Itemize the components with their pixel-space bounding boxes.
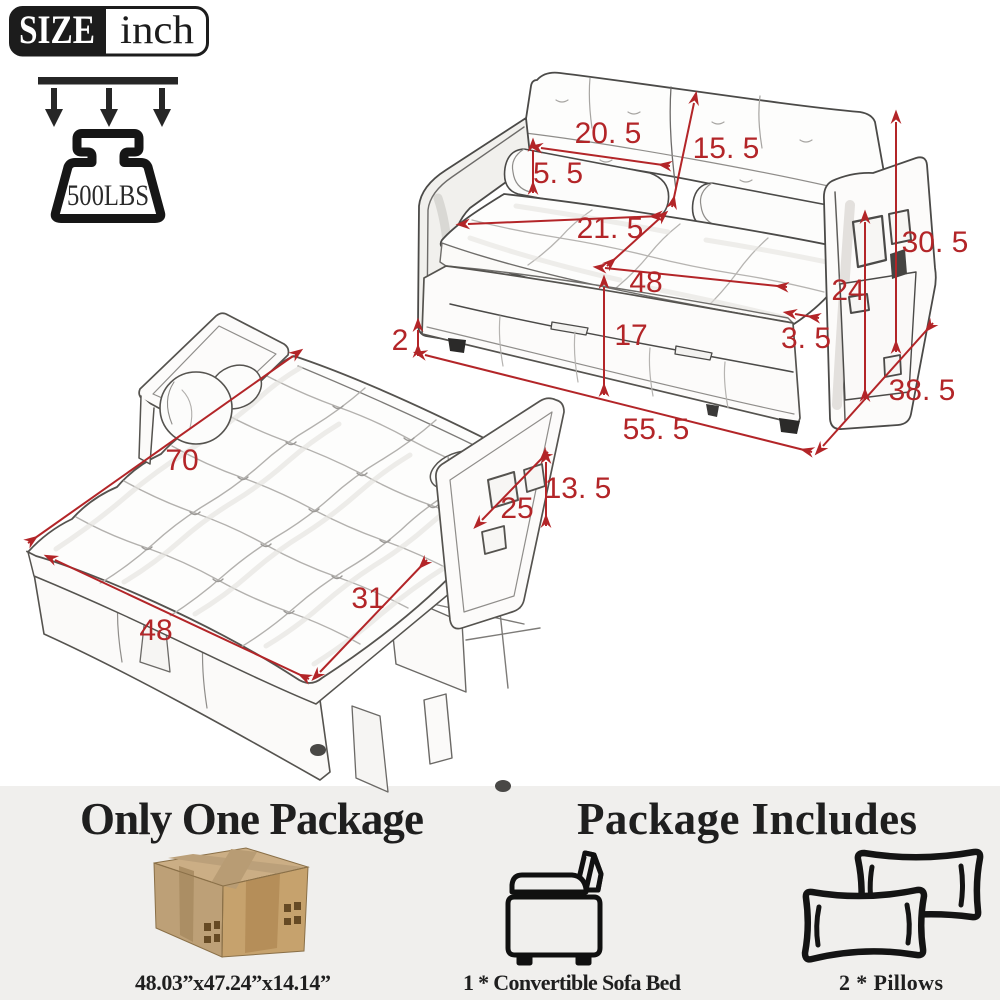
svg-text:3. 5: 3. 5 xyxy=(781,322,831,355)
svg-text:2 * Pillows: 2 * Pillows xyxy=(839,970,943,995)
svg-text:25: 25 xyxy=(500,492,533,525)
svg-text:48: 48 xyxy=(139,614,172,647)
svg-text:2: 2 xyxy=(392,324,409,357)
svg-text:70: 70 xyxy=(165,444,198,477)
svg-text:38. 5: 38. 5 xyxy=(889,374,956,407)
svg-text:13. 5: 13. 5 xyxy=(545,472,612,505)
svg-text:inch: inch xyxy=(120,7,194,52)
svg-text:20. 5: 20. 5 xyxy=(575,117,642,150)
svg-text:21. 5: 21. 5 xyxy=(577,212,644,245)
svg-text:1 * Convertible Sofa Bed: 1 * Convertible Sofa Bed xyxy=(463,970,681,995)
svg-text:31: 31 xyxy=(351,582,384,615)
svg-text:24: 24 xyxy=(831,274,864,307)
svg-text:5. 5: 5. 5 xyxy=(533,157,583,190)
svg-text:500LBS: 500LBS xyxy=(67,179,149,212)
svg-text:30. 5: 30. 5 xyxy=(902,226,969,259)
svg-text:Package Includes: Package Includes xyxy=(577,794,917,844)
svg-text:55. 5: 55. 5 xyxy=(623,413,690,446)
svg-text:48: 48 xyxy=(629,266,662,299)
svg-text:17: 17 xyxy=(614,319,647,352)
svg-text:SIZE: SIZE xyxy=(19,7,95,52)
svg-text:15. 5: 15. 5 xyxy=(693,132,760,165)
svg-text:Only One Package: Only One Package xyxy=(80,794,424,844)
svg-text:48.03”x47.24”x14.14”: 48.03”x47.24”x14.14” xyxy=(135,970,331,995)
